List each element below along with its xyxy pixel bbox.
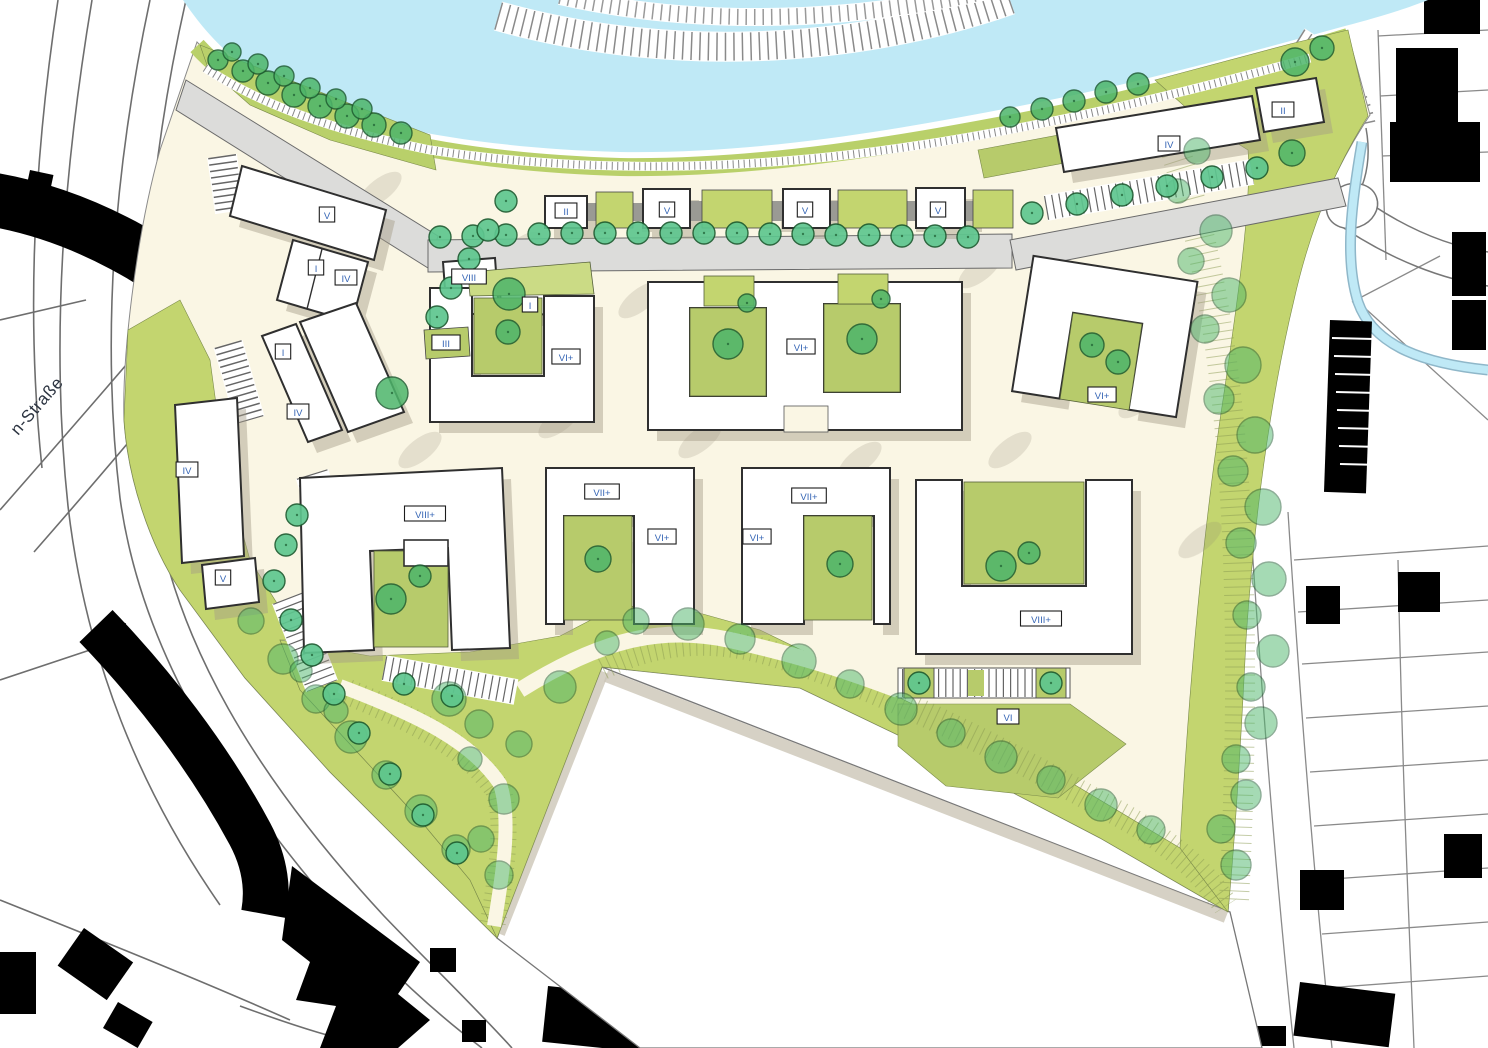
tree-center-dot (505, 234, 507, 236)
tree-center-dot (290, 619, 292, 621)
building-label-text: VIII (462, 273, 476, 284)
tree-center-dot (1294, 61, 1296, 63)
tree-icon (1218, 456, 1248, 486)
tree-center-dot (703, 232, 705, 234)
tree-center-dot (285, 544, 287, 546)
tree-center-dot (868, 234, 870, 236)
tree-icon (623, 608, 649, 634)
tree-center-dot (296, 514, 298, 516)
tree-center-dot (373, 124, 375, 126)
building-label-text: VI+ (794, 343, 809, 354)
building-label: II (555, 203, 577, 218)
building-label: II (1272, 102, 1294, 117)
tree-icon (937, 719, 965, 747)
tree-center-dot (1041, 108, 1043, 110)
courtyard-wing (404, 540, 448, 566)
tree-icon (1245, 489, 1281, 525)
tree-center-dot (918, 682, 920, 684)
tree-center-dot (422, 814, 424, 816)
tree-center-dot (1137, 83, 1139, 85)
building-label: VI+ (787, 339, 815, 354)
building-label-text: IV (294, 408, 304, 419)
tree-center-dot (389, 773, 391, 775)
building-label-text: II (1280, 106, 1285, 117)
building-label: VIII (452, 269, 487, 284)
tree-icon (544, 671, 576, 703)
building-label: V (215, 570, 230, 585)
tree-center-dot (333, 693, 335, 695)
tree-center-dot (1121, 194, 1123, 196)
tree-center-dot (934, 235, 936, 237)
tree-center-dot (231, 51, 233, 53)
tree-center-dot (538, 233, 540, 235)
tree-center-dot (319, 105, 321, 107)
tree-icon (458, 747, 482, 771)
tree-center-dot (508, 293, 510, 295)
tree-icon (672, 608, 704, 640)
building-label-text: VII+ (593, 488, 611, 499)
building-label: VIII+ (405, 506, 446, 521)
tree-center-dot (802, 233, 804, 235)
tree-icon (1237, 417, 1273, 453)
building-label: VII+ (792, 488, 827, 503)
tree-center-dot (1031, 212, 1033, 214)
building-label: VIII+ (1021, 611, 1062, 626)
tree-center-dot (361, 108, 363, 110)
building-label: I (275, 344, 290, 359)
building-label-text: V (220, 574, 227, 585)
building-label-text: II (563, 207, 568, 218)
tree-icon (1200, 215, 1232, 247)
building-label-text: VI+ (750, 533, 765, 544)
tree-icon (1137, 816, 1165, 844)
tree-icon (1207, 815, 1235, 843)
tree-center-dot (346, 115, 348, 117)
tree-center-dot (880, 298, 882, 300)
tree-center-dot (1291, 152, 1293, 154)
tree-center-dot (487, 229, 489, 231)
tree-center-dot (1009, 116, 1011, 118)
building-label-text: IV (1165, 140, 1175, 151)
tree-center-dot (1105, 91, 1107, 93)
tree-icon (1037, 766, 1065, 794)
tree-center-dot (604, 232, 606, 234)
building-label: I (308, 260, 323, 275)
tree-center-dot (746, 302, 748, 304)
building-label-text: I (282, 348, 285, 359)
building-label: IV (1158, 136, 1180, 151)
building-IV-west (175, 398, 244, 563)
building-label: VI+ (743, 529, 771, 544)
tree-icon (885, 693, 917, 725)
tree-center-dot (273, 580, 275, 582)
tree-center-dot (436, 316, 438, 318)
building-label-text: VIII+ (1031, 615, 1051, 626)
tree-center-dot (267, 82, 269, 84)
tree-icon (485, 861, 513, 889)
building-label: VI+ (648, 529, 676, 544)
building-label-text: V (802, 206, 809, 217)
tree-center-dot (283, 75, 285, 77)
tree-center-dot (391, 392, 393, 394)
tree-icon (595, 631, 619, 655)
tree-center-dot (597, 558, 599, 560)
tree-center-dot (472, 235, 474, 237)
tree-icon (489, 784, 519, 814)
tree-icon (725, 624, 755, 654)
tree-center-dot (390, 598, 392, 600)
building-label-text: I (315, 264, 318, 275)
site-plan-map: VIIVIIVVVVIIIIIIIVI+VI+VI+IVIIIIVIVVVIII… (0, 0, 1488, 1048)
tree-center-dot (505, 200, 507, 202)
tree-center-dot (967, 236, 969, 238)
tree-icon (985, 741, 1017, 773)
tree-center-dot (571, 232, 573, 234)
tree-center-dot (1166, 185, 1168, 187)
tree-center-dot (358, 732, 360, 734)
building-label-text: VIII+ (415, 510, 435, 521)
tree-center-dot (769, 233, 771, 235)
building-label-text: V (324, 211, 331, 222)
tree-icon (1233, 601, 1261, 629)
building-label-text: V (935, 206, 942, 217)
building-label-text: VI+ (655, 533, 670, 544)
tree-center-dot (400, 132, 402, 134)
building-label-text: I (529, 301, 532, 312)
building-label-text: VI+ (559, 353, 574, 364)
tree-center-dot (736, 232, 738, 234)
building-label: VII+ (585, 484, 620, 499)
tree-center-dot (727, 343, 729, 345)
building-label: V (659, 202, 674, 217)
tree-center-dot (1321, 47, 1323, 49)
tree-icon (1222, 745, 1250, 773)
tree-center-dot (1000, 565, 1002, 567)
tree-icon (1257, 635, 1289, 667)
tree-center-dot (217, 59, 219, 61)
tree-icon (1225, 347, 1261, 383)
tree-icon (1204, 384, 1234, 414)
tree-center-dot (1117, 361, 1119, 363)
tree-icon (1178, 248, 1204, 274)
tree-center-dot (257, 63, 259, 65)
tree-center-dot (403, 683, 405, 685)
tree-center-dot (309, 87, 311, 89)
building-label: VI+ (1088, 387, 1116, 402)
tree-icon (836, 670, 864, 698)
tree-center-dot (468, 258, 470, 260)
tree-center-dot (1091, 344, 1093, 346)
site-plan-stage: VIIVIIVVVVIIIIIIIVI+VI+VI+IVIIIIVIVVVIII… (0, 0, 1488, 1048)
tree-icon (468, 826, 494, 852)
tree-center-dot (835, 234, 837, 236)
tree-center-dot (450, 287, 452, 289)
building-label-text: III (442, 339, 450, 350)
building-label-text: VII+ (800, 492, 818, 503)
building-label-text: VI+ (1095, 391, 1110, 402)
building-label: VI (997, 709, 1019, 724)
tree-icon (1252, 562, 1286, 596)
building-label: IV (176, 462, 198, 477)
tree-center-dot (1256, 167, 1258, 169)
building-label: I (522, 297, 537, 312)
tree-center-dot (901, 235, 903, 237)
tree-center-dot (1211, 176, 1213, 178)
tree-icon (1184, 138, 1210, 164)
tree-icon (238, 608, 264, 634)
building-label: V (797, 202, 812, 217)
building-label-text: IV (342, 274, 352, 285)
stairs-northwest (222, 156, 230, 212)
tree-center-dot (507, 331, 509, 333)
tree-center-dot (451, 695, 453, 697)
tree-icon (1226, 528, 1256, 558)
tree-center-dot (1076, 203, 1078, 205)
tree-center-dot (839, 563, 841, 565)
tree-center-dot (1073, 100, 1075, 102)
tree-center-dot (1050, 682, 1052, 684)
tree-center-dot (637, 232, 639, 234)
tree-center-dot (335, 98, 337, 100)
building-label-text: VI (1004, 713, 1013, 724)
tree-icon (1085, 789, 1117, 821)
tree-icon (1231, 780, 1261, 810)
tree-icon (506, 731, 532, 757)
tree-center-dot (439, 236, 441, 238)
tree-icon (1191, 315, 1219, 343)
building-label: IV (335, 270, 357, 285)
building-label: V (930, 202, 945, 217)
tree-center-dot (419, 575, 421, 577)
building-label: V (319, 207, 334, 222)
tree-icon (1212, 278, 1246, 312)
building-label: IV (287, 404, 309, 419)
tree-center-dot (861, 338, 863, 340)
tree-icon (782, 644, 816, 678)
tree-center-dot (311, 654, 313, 656)
building-label-text: V (664, 206, 671, 217)
tree-center-dot (293, 94, 295, 96)
tree-icon (1221, 850, 1251, 880)
tree-center-dot (670, 232, 672, 234)
tree-center-dot (242, 70, 244, 72)
building-label-text: IV (183, 466, 193, 477)
building-label: III (432, 335, 460, 350)
tree-center-dot (456, 852, 458, 854)
tree-center-dot (1028, 552, 1030, 554)
tree-icon (1245, 707, 1277, 739)
building-label: VI+ (552, 349, 580, 364)
tree-icon (1237, 673, 1265, 701)
tree-icon (465, 710, 493, 738)
